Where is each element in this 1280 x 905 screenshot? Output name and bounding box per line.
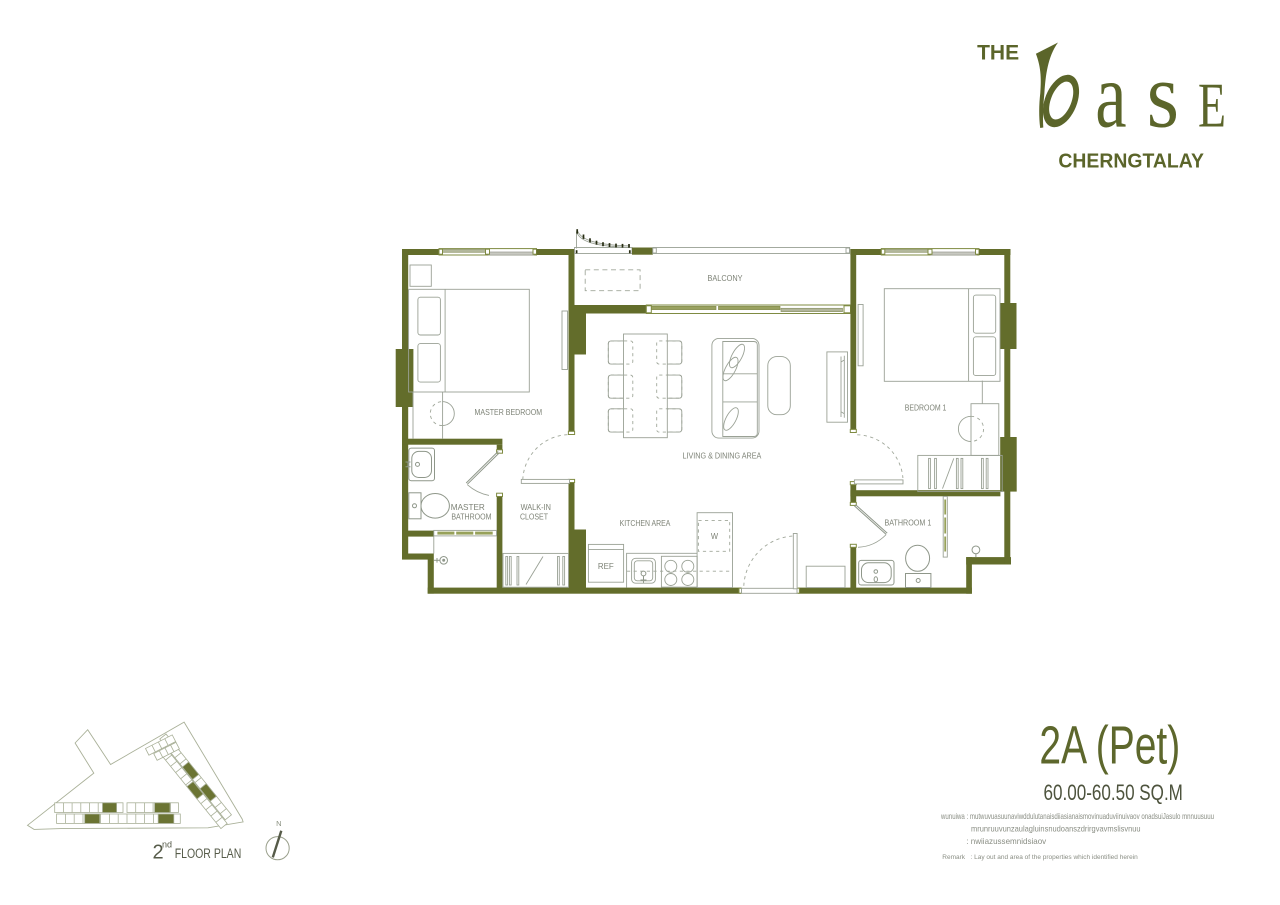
svg-text:CHERNGTALAY: CHERNGTALAY [1058,150,1204,173]
svg-text:BALCONY: BALCONY [708,274,743,283]
svg-text:BATHROOM 1: BATHROOM 1 [885,519,932,528]
svg-text:W: W [711,532,719,541]
svg-text:2A (Pet): 2A (Pet) [1039,716,1180,775]
svg-text:Remark : Lay out and area of: Remark : Lay out and area of the propert… [942,854,1138,861]
svg-text:LIVING & DINING AREA: LIVING & DINING AREA [683,451,762,460]
svg-text:KITCHEN AREA: KITCHEN AREA [620,519,671,528]
svg-text:a: a [1095,44,1126,147]
svg-text:nd: nd [162,840,172,850]
svg-text:MASTER BEDROOM: MASTER BEDROOM [475,408,543,417]
svg-text:REF: REF [598,562,614,571]
svg-text:BEDROOM 1: BEDROOM 1 [905,403,947,412]
svg-text:THE: THE [977,42,1019,65]
svg-text:wunuiwa : mutwuvuasuunaviwddul: wunuiwa : mutwuvuasuunaviwddulutanaisdii… [940,812,1214,821]
svg-text:MASTER: MASTER [451,503,485,512]
svg-text:WALK-IN: WALK-IN [521,503,551,512]
svg-text:BATHROOM: BATHROOM [451,512,491,521]
svg-text:: nwiiazussemnidsiaov: : nwiiazussemnidsiaov [966,837,1047,846]
svg-text:s: s [1147,44,1179,147]
svg-text:FLOOR PLAN: FLOOR PLAN [175,846,242,862]
svg-text:E: E [1198,70,1226,140]
svg-text:CLOSET: CLOSET [520,512,548,521]
svg-text:mrunruuvunzaulagluinsnudoanszd: mrunruuvunzaulagluinsnudoanszdrirgvavmsl… [971,825,1141,834]
svg-text:60.00-60.50 SQ.M: 60.00-60.50 SQ.M [1044,780,1183,805]
svg-text:N: N [276,819,281,828]
